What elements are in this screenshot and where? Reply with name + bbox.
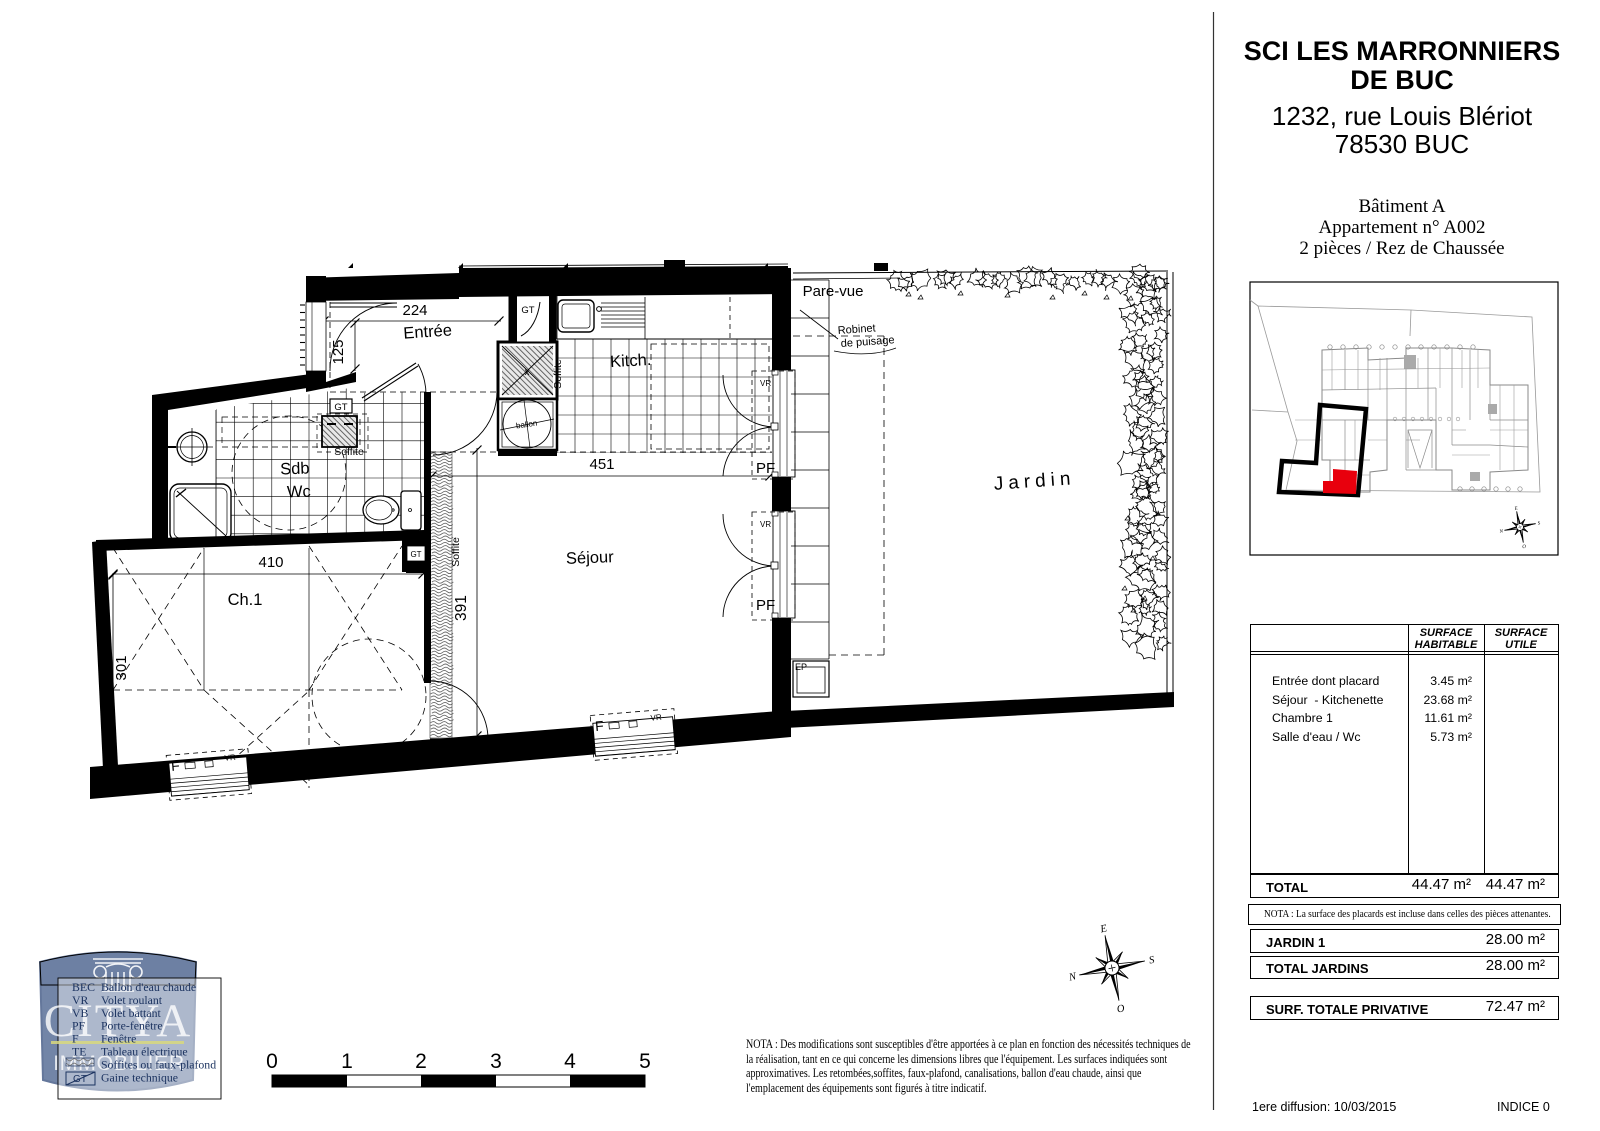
svg-text:Gaine technique: Gaine technique [101,1070,178,1084]
svg-text:Jardin: Jardin [993,468,1076,495]
svg-text:Tableau électrique: Tableau électrique [101,1045,188,1059]
svg-text:Soffite: Soffite [552,359,564,389]
svg-text:Soffites ou faux-plafond: Soffites ou faux-plafond [101,1057,216,1071]
svg-text:410: 410 [258,554,283,571]
svg-text:Sdb: Sdb [280,459,310,478]
svg-text:0: 0 [266,1050,278,1073]
svg-text:1: 1 [341,1050,353,1073]
svg-text:Wc: Wc [287,483,311,502]
svg-text:GT: GT [410,550,421,559]
svg-text:Volet roulant: Volet roulant [101,993,163,1007]
svg-text:N: N [1067,971,1078,984]
svg-text:Porte-fenêtre: Porte-fenêtre [101,1019,163,1033]
svg-text:2: 2 [415,1050,427,1073]
svg-text:451: 451 [589,456,614,473]
svg-text:F: F [594,717,604,734]
svg-text:x: x [525,367,530,378]
svg-text:BEC: BEC [72,980,95,994]
svg-text:Ballon d'eau chaude: Ballon d'eau chaude [101,980,196,994]
svg-text:Robinet: Robinet [837,322,876,337]
svg-text:Ch.1: Ch.1 [228,591,263,609]
svg-text:Séjour: Séjour [566,548,615,568]
svg-text:GT: GT [73,1074,87,1085]
svg-text:VR: VR [760,379,771,388]
svg-text:GT: GT [334,402,347,413]
svg-text:125: 125 [330,339,347,364]
svg-text:VR: VR [224,753,236,763]
svg-text:Pare-vue: Pare-vue [803,283,864,300]
svg-text:391: 391 [453,595,470,621]
svg-text:Soffite: Soffite [450,537,462,567]
svg-text:GT: GT [521,305,534,316]
svg-text:VB: VB [72,1006,89,1020]
svg-text:3: 3 [490,1050,502,1073]
svg-text:PF: PF [72,1019,86,1033]
svg-text:Kitch.: Kitch. [610,351,652,371]
svg-text:224: 224 [402,302,427,319]
svg-text:E: E [1099,923,1109,935]
svg-text:VR: VR [760,520,771,529]
svg-text:VR: VR [650,713,662,723]
svg-text:PF: PF [756,460,775,477]
svg-text:TE: TE [72,1045,86,1059]
svg-text:4: 4 [564,1050,576,1073]
svg-text:de puisage: de puisage [840,334,895,350]
svg-text:O: O [1116,1003,1126,1015]
svg-text:F: F [170,757,180,774]
svg-text:Volet battant: Volet battant [101,1006,161,1020]
svg-text:EP: EP [795,662,807,672]
svg-text:5: 5 [639,1050,651,1073]
svg-text:301: 301 [113,655,130,680]
svg-text:Fenêtre: Fenêtre [101,1032,136,1046]
svg-text:Entrée: Entrée [403,321,453,342]
svg-text:Soffite: Soffite [334,446,364,458]
svg-text:VR: VR [72,993,89,1007]
svg-text:F: F [72,1032,79,1046]
svg-text:S: S [1148,955,1156,967]
svg-text:PF: PF [756,597,775,614]
